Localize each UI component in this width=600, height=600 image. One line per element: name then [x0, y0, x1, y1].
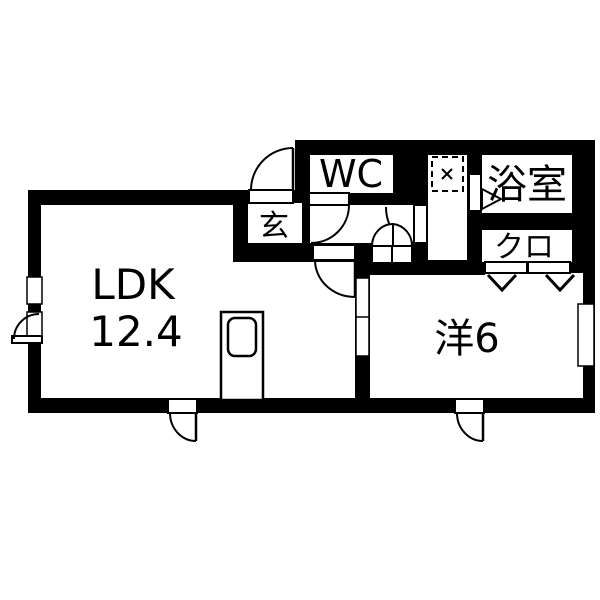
label-closet: クロ — [494, 230, 554, 265]
window-left — [27, 277, 42, 304]
wall-bottom — [28, 398, 595, 413]
label-entrance: 玄 — [259, 209, 289, 244]
label-western-room: 洋6 — [434, 316, 499, 362]
door-hall-ldk-slab — [313, 245, 355, 260]
door-western-south-slab — [455, 399, 484, 413]
door-ldk-south-slab — [168, 399, 197, 413]
door-bathroom-panel — [469, 174, 481, 211]
kitchen-sink — [228, 318, 256, 356]
label-ldk-size: 12.4 — [89, 307, 183, 356]
washing-machine-space — [432, 157, 463, 191]
wall-western-top-2 — [428, 260, 485, 275]
window-right — [578, 304, 594, 366]
floor-plan: LDK 12.4 洋6 WC 浴室 クロ 玄 — [0, 0, 600, 600]
label-wc: WC — [319, 152, 383, 196]
kitchen-sink-unit — [221, 312, 263, 400]
bifold-panel-right — [392, 246, 412, 263]
label-bathroom: 浴室 — [487, 162, 567, 208]
door-entrance-slab — [249, 190, 293, 203]
bifold-door-hall — [372, 224, 412, 263]
bifold-panel-left — [372, 246, 392, 263]
sliding-door-ldk-western — [356, 278, 369, 356]
door-left-slab — [12, 336, 42, 343]
floor-plan-canvas: LDK 12.4 洋6 WC 浴室 クロ 玄 — [0, 0, 600, 600]
label-ldk: LDK — [91, 260, 176, 309]
door-washroom-open-leaf — [414, 205, 427, 243]
